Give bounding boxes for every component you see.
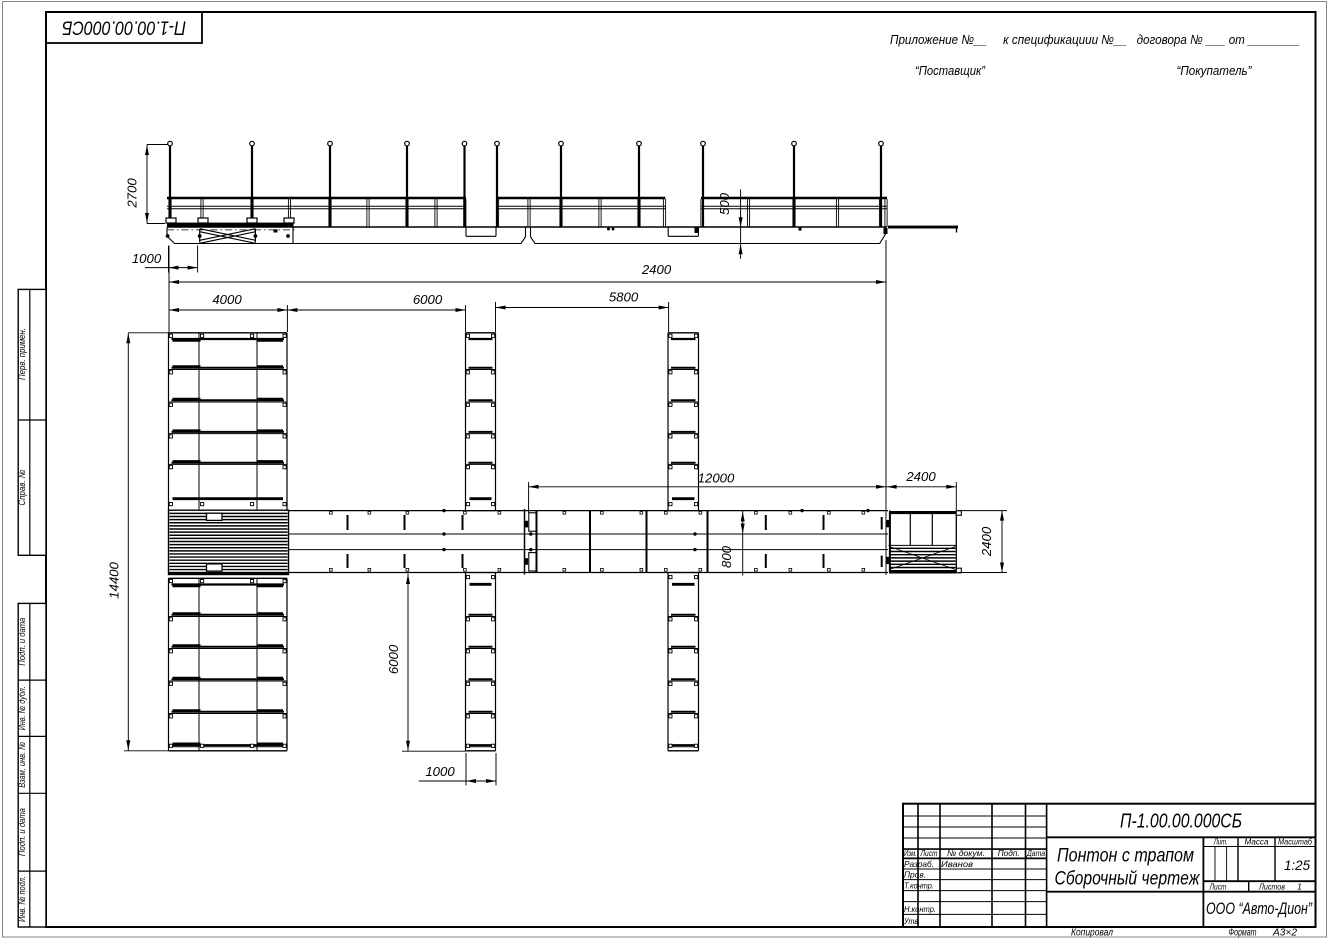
svg-text:Подп.: Подп. — [998, 848, 1020, 858]
svg-text:“Поставщик”: “Поставщик” — [915, 63, 986, 78]
svg-text:Взам. инв. №: Взам. инв. № — [17, 742, 27, 788]
svg-text:1:25: 1:25 — [1284, 858, 1310, 873]
svg-text:Листов: Листов — [1258, 881, 1285, 891]
svg-text:№ докум.: № докум. — [947, 848, 985, 858]
svg-text:1000: 1000 — [132, 251, 162, 266]
svg-text:2400: 2400 — [905, 469, 936, 484]
svg-text:А3×2: А3×2 — [1272, 928, 1297, 939]
svg-text:П-1.00.00.000СБ: П-1.00.00.000СБ — [62, 17, 186, 39]
svg-text:Масштаб: Масштаб — [1278, 836, 1312, 846]
svg-text:Разраб.: Разраб. — [904, 859, 934, 869]
svg-text:Иванов: Иванов — [941, 859, 974, 869]
svg-text:Копировал: Копировал — [1071, 928, 1113, 939]
svg-text:Понтон с трапом: Понтон с трапом — [1057, 846, 1194, 867]
svg-text:Подп. и дата: Подп. и дата — [17, 618, 27, 666]
svg-text:Лит.: Лит. — [1213, 836, 1228, 846]
svg-text:Масса: Масса — [1245, 836, 1269, 846]
svg-text:Лист: Лист — [920, 848, 938, 858]
svg-text:Приложение №__ к специфика: Приложение №__ к спецификациии №__ догов… — [890, 32, 1300, 47]
svg-text:Изм.: Изм. — [904, 848, 917, 858]
svg-text:Формат: Формат — [1229, 928, 1257, 939]
svg-text:1: 1 — [1297, 881, 1302, 891]
svg-text:ООО “Авто-Дион”: ООО “Авто-Дион” — [1206, 900, 1313, 918]
svg-text:Перв. примен.: Перв. примен. — [17, 328, 27, 380]
svg-text:6000: 6000 — [386, 644, 401, 674]
svg-text:14400: 14400 — [107, 561, 122, 598]
svg-text:Инв. № дубл.: Инв. № дубл. — [17, 686, 27, 730]
svg-text:12000: 12000 — [698, 471, 735, 486]
svg-text:Лист: Лист — [1209, 881, 1227, 891]
svg-text:Т.контр.: Т.контр. — [904, 880, 934, 890]
svg-text:Н.контр.: Н.контр. — [904, 904, 936, 914]
svg-text:500: 500 — [717, 192, 732, 215]
svg-text:П-1.00.00.000СБ: П-1.00.00.000СБ — [1120, 810, 1242, 833]
svg-text:2400: 2400 — [641, 262, 672, 277]
svg-text:Утв.: Утв. — [903, 916, 920, 926]
svg-text:2700: 2700 — [125, 178, 140, 209]
svg-text:Подп. и дата: Подп. и дата — [17, 808, 27, 856]
svg-text:5800: 5800 — [609, 290, 639, 305]
svg-text:Дата: Дата — [1026, 848, 1045, 858]
svg-text:1000: 1000 — [425, 764, 455, 779]
svg-text:Пров.: Пров. — [904, 869, 926, 879]
svg-text:Инв. № подл.: Инв. № подл. — [17, 876, 27, 922]
svg-text:6000: 6000 — [413, 292, 443, 307]
svg-text:4000: 4000 — [212, 292, 242, 307]
svg-text:800: 800 — [719, 545, 734, 568]
svg-text:“Покупатель”: “Покупатель” — [1177, 63, 1253, 78]
svg-text:2400: 2400 — [979, 526, 994, 557]
svg-text:Справ. №: Справ. № — [17, 470, 27, 506]
svg-text:Сборочный чертеж: Сборочный чертеж — [1055, 869, 1201, 890]
